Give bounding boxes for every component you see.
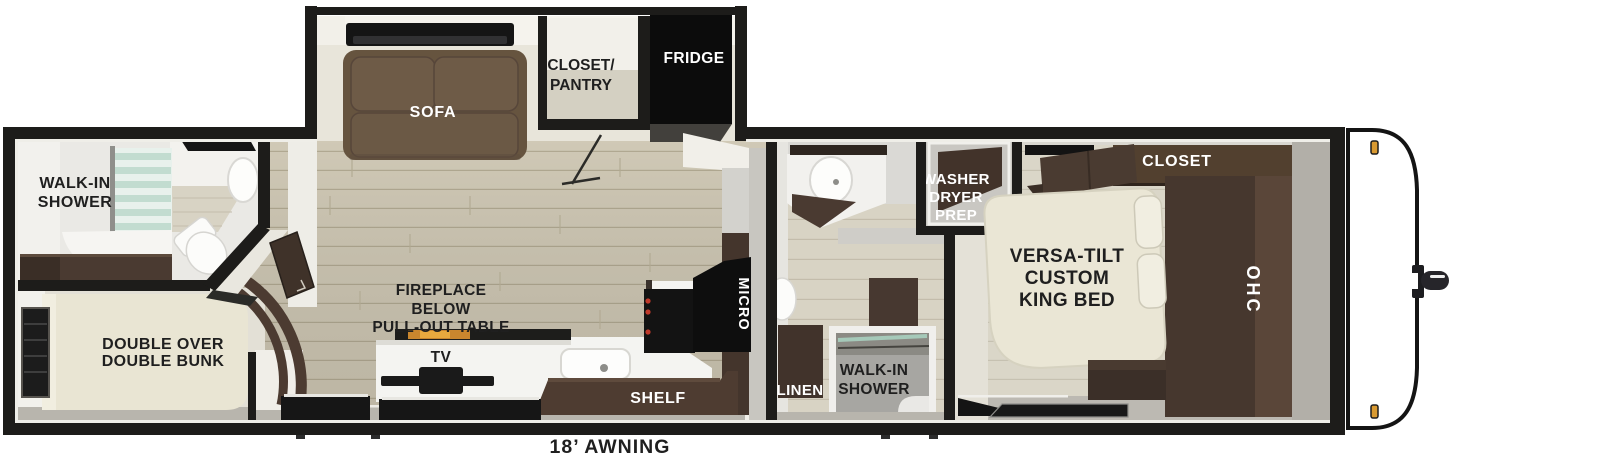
svg-text:VERSA-TILT: VERSA-TILT xyxy=(1010,246,1124,267)
svg-text:SHOWER: SHOWER xyxy=(838,381,910,398)
svg-text:18’ AWNING: 18’ AWNING xyxy=(550,436,671,458)
svg-text:FRIDGE: FRIDGE xyxy=(664,50,725,67)
svg-text:SOFA: SOFA xyxy=(410,104,457,121)
svg-text:MICRO: MICRO xyxy=(735,277,751,330)
svg-text:BELOW: BELOW xyxy=(411,301,470,318)
svg-text:PULL-OUT TABLE: PULL-OUT TABLE xyxy=(372,319,509,336)
svg-text:PANTRY: PANTRY xyxy=(550,77,613,94)
svg-text:DOUBLE OVER: DOUBLE OVER xyxy=(102,336,224,353)
svg-text:WALK-IN: WALK-IN xyxy=(840,362,908,379)
svg-text:DRYER: DRYER xyxy=(929,189,982,206)
svg-text:SHOWER: SHOWER xyxy=(38,194,112,211)
svg-text:DOUBLE BUNK: DOUBLE BUNK xyxy=(102,353,225,370)
svg-text:SHELF: SHELF xyxy=(630,390,685,407)
svg-text:OHC: OHC xyxy=(1243,266,1263,315)
svg-text:TV: TV xyxy=(431,349,452,366)
svg-text:CLOSET: CLOSET xyxy=(1142,153,1212,170)
svg-text:LINEN: LINEN xyxy=(777,382,824,399)
svg-text:CUSTOM: CUSTOM xyxy=(1025,268,1109,289)
svg-text:CLOSET/: CLOSET/ xyxy=(547,57,615,74)
svg-text:WALK-IN: WALK-IN xyxy=(39,175,110,192)
svg-text:KING BED: KING BED xyxy=(1019,290,1115,311)
svg-text:WASHER: WASHER xyxy=(922,171,990,188)
svg-text:FIREPLACE: FIREPLACE xyxy=(396,282,487,299)
svg-text:PREP: PREP xyxy=(935,207,977,224)
